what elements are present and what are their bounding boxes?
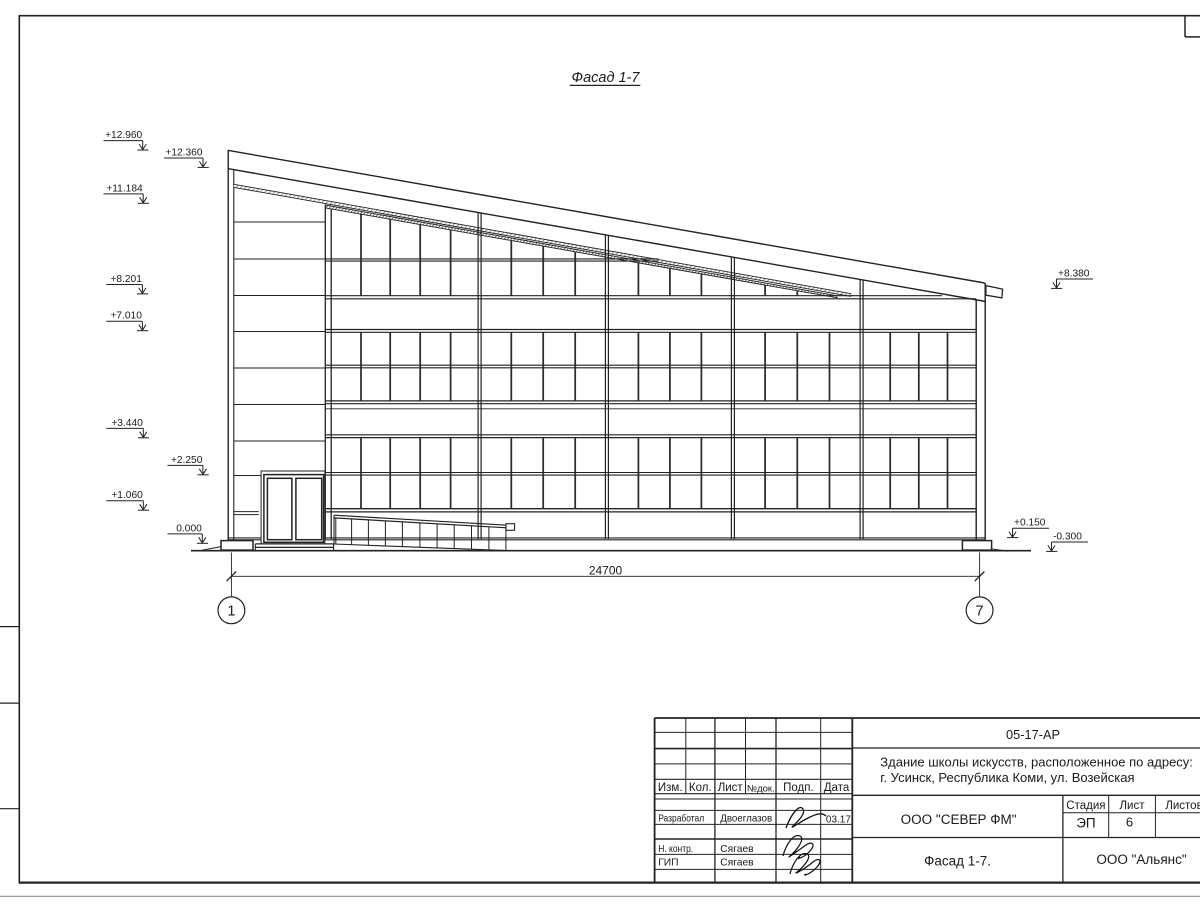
svg-text:+12.960: +12.960 (105, 130, 142, 141)
svg-text:05-17-АР: 05-17-АР (1006, 727, 1060, 742)
svg-text:7: 7 (976, 604, 984, 620)
svg-text:Фасад 1-7: Фасад 1-7 (572, 70, 641, 86)
svg-text:Двоеглазов: Двоеглазов (720, 814, 773, 825)
svg-text:+1.060: +1.060 (111, 490, 143, 501)
svg-text:1: 1 (227, 604, 235, 620)
svg-text:0.000: 0.000 (176, 523, 202, 534)
svg-text:6: 6 (1126, 815, 1133, 830)
svg-text:Кол.: Кол. (689, 782, 712, 794)
svg-text:Лист: Лист (718, 782, 744, 794)
svg-text:ООО "Альянс": ООО "Альянс" (1096, 852, 1186, 867)
svg-text:ООО "СЕВЕР ФМ": ООО "СЕВЕР ФМ" (901, 812, 1017, 827)
svg-text:+8.380: +8.380 (1058, 268, 1090, 279)
svg-text:+12.360: +12.360 (165, 147, 202, 158)
svg-text:ГИП: ГИП (658, 857, 678, 868)
svg-text:24700: 24700 (589, 563, 623, 577)
svg-text:Разработал: Разработал (658, 813, 704, 825)
svg-text:г. Усинск, Республика Коми, ул: г. Усинск, Республика Коми, ул. Возейска… (880, 770, 1134, 785)
svg-text:Н. контр.: Н. контр. (658, 844, 693, 855)
svg-text:Лист: Лист (1120, 800, 1146, 812)
svg-text:№док.: №док. (747, 783, 775, 794)
svg-text:+2.250: +2.250 (171, 455, 203, 466)
svg-text:Дата: Дата (824, 782, 850, 794)
svg-text:+7.010: +7.010 (110, 311, 142, 322)
svg-text:Сягаев: Сягаев (720, 844, 754, 855)
svg-text:Листов: Листов (1165, 800, 1200, 812)
svg-text:+11.184: +11.184 (106, 183, 143, 194)
svg-text:+3.440: +3.440 (111, 418, 143, 429)
svg-text:03.17: 03.17 (826, 815, 851, 826)
svg-text:-0.300: -0.300 (1053, 531, 1082, 542)
svg-text:Стадия: Стадия (1066, 800, 1105, 812)
svg-text:+0.150: +0.150 (1014, 518, 1046, 529)
svg-text:Изм.: Изм. (658, 782, 683, 794)
svg-text:Подп.: Подп. (783, 782, 814, 794)
svg-text:ЭП: ЭП (1076, 816, 1095, 831)
svg-text:Фасад 1-7.: Фасад 1-7. (924, 854, 991, 869)
svg-text:Здание школы искусств, располо: Здание школы искусств, расположенное по … (880, 755, 1193, 770)
svg-text:Сягаев: Сягаев (720, 857, 754, 868)
svg-text:+8.201: +8.201 (110, 274, 142, 285)
